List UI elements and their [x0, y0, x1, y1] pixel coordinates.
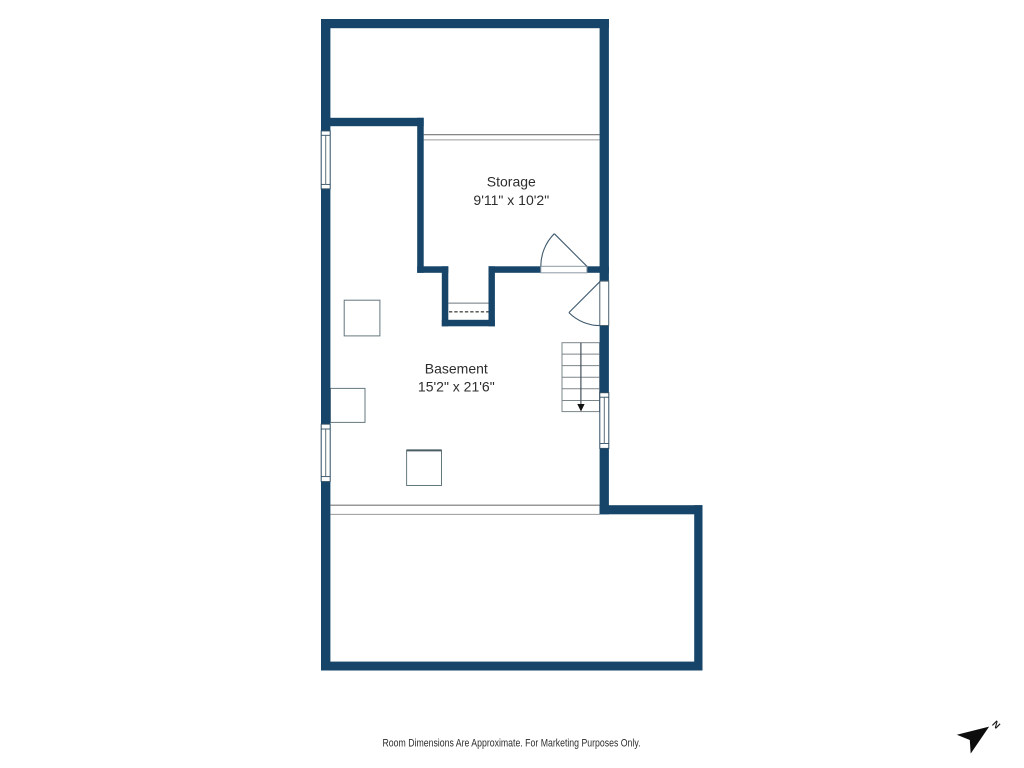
- svg-text:Room Dimensions Are Approximat: Room Dimensions Are Approximate. For Mar…: [383, 738, 641, 750]
- svg-text:9'11" x 10'2": 9'11" x 10'2": [473, 192, 549, 208]
- svg-text:15'2" x 21'6": 15'2" x 21'6": [418, 379, 495, 395]
- svg-text:N: N: [989, 719, 1002, 732]
- svg-text:Storage: Storage: [487, 174, 536, 190]
- svg-text:Basement: Basement: [425, 360, 488, 376]
